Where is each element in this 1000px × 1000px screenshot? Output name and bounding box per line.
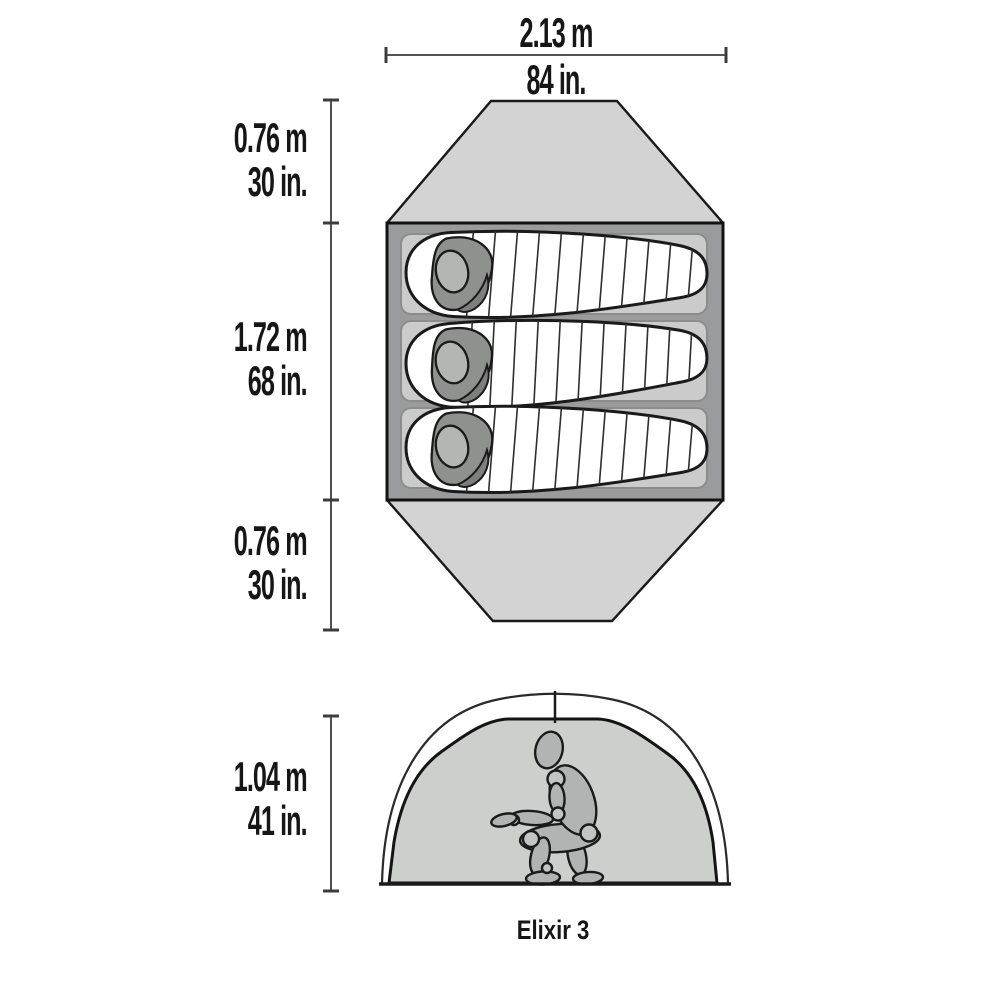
top-view bbox=[387, 101, 723, 621]
cross-section bbox=[379, 691, 731, 885]
peak-height-imperial: 41 in. bbox=[234, 799, 307, 843]
width-imperial-label: 84 in. bbox=[526, 58, 585, 102]
bottom-vestibule-metric: 0.76 m bbox=[234, 519, 307, 563]
width-metric-label: 2.13 m bbox=[519, 11, 592, 55]
peak-height-metric: 1.04 m bbox=[234, 755, 307, 799]
figure-ankle-joint bbox=[542, 863, 552, 873]
top-vestibule-imperial: 30 in. bbox=[234, 160, 307, 204]
bottom-vestibule-dim-label: 0.76 m 30 in. bbox=[234, 519, 307, 607]
figure-hip-joint bbox=[581, 825, 598, 842]
peak-height-dim-label: 1.04 m 41 in. bbox=[234, 755, 307, 843]
figure-knee-joint bbox=[523, 831, 539, 847]
top-vestibule-metric: 0.76 m bbox=[234, 116, 307, 160]
interior-length-dim-label: 1.72 m 68 in. bbox=[234, 315, 307, 403]
top-vestibule-dim-label: 0.76 m 30 in. bbox=[234, 116, 307, 204]
interior-length-metric: 1.72 m bbox=[234, 315, 307, 359]
product-name-label: Elixir 3 bbox=[517, 915, 590, 946]
interior-length-imperial: 68 in. bbox=[234, 359, 307, 403]
bottom-vestibule-imperial: 30 in. bbox=[234, 563, 307, 607]
tent-diagram bbox=[0, 0, 1000, 1000]
